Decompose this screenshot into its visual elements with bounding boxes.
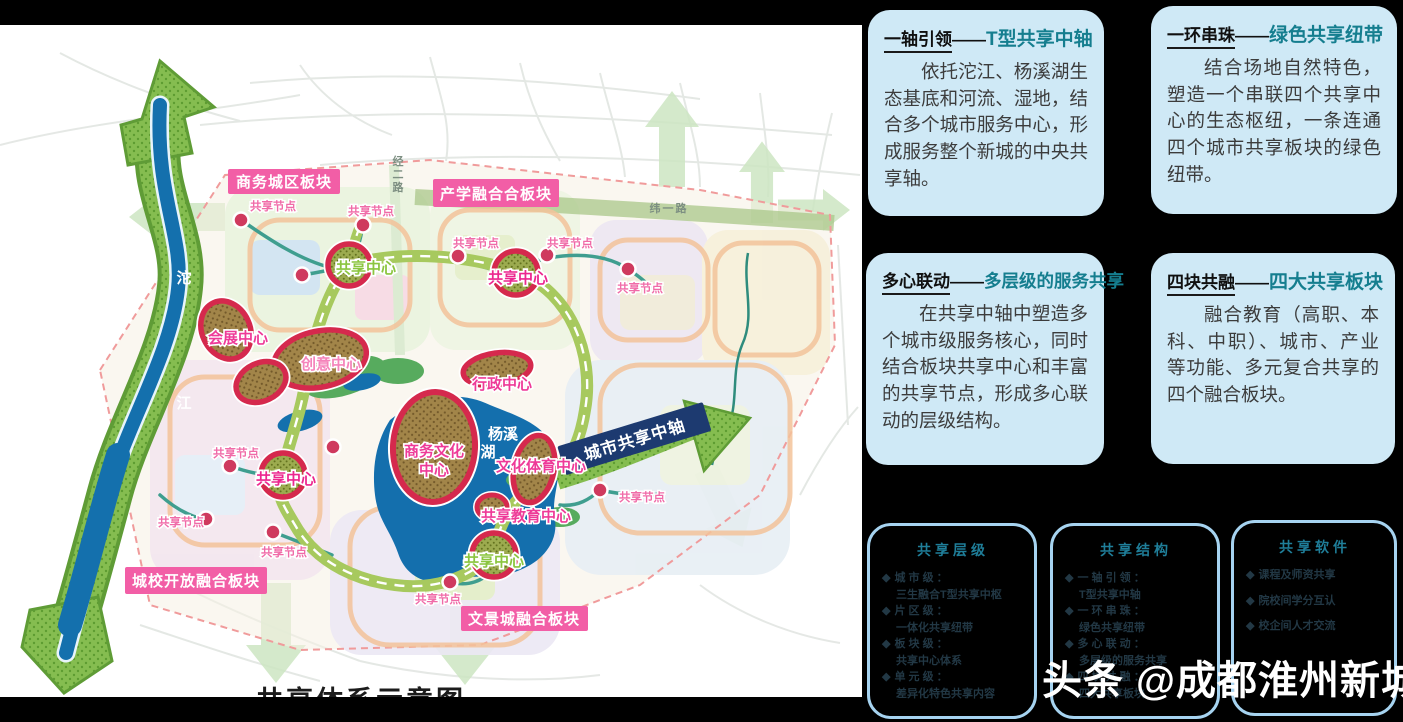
node-label: 共享节点	[213, 446, 259, 460]
node-label: 共享节点	[547, 236, 593, 250]
creative-center-label: 创意中心	[300, 355, 361, 373]
exhibition-center-label: 会展中心	[208, 329, 268, 347]
card-title-black: 一轴引领	[884, 30, 952, 53]
mini-item: ◆院校间学分互认	[1246, 593, 1384, 610]
diamond-bullet-icon: ◆	[1065, 605, 1073, 617]
mini-item: ◆一 环 串 珠 ：绿色共享纽带	[1065, 603, 1207, 636]
block-city-campus: 城校开放融合板块	[132, 572, 260, 590]
mini-item-value: 三生融合T型共享中枢	[882, 587, 1024, 604]
page: 城市共享中轴	[0, 0, 1403, 722]
card-title: 一环串珠——绿色共享纽带	[1167, 20, 1381, 47]
card-title-dash: ——	[1235, 273, 1269, 292]
card-multicenter: 多心联动——多层级的服务共享 在共享中轴中塑造多个城市级服务核心，同时结合板块共…	[866, 253, 1104, 465]
diamond-bullet-icon: ◆	[1246, 620, 1254, 632]
share-center-label: 共享中心	[256, 470, 316, 488]
diamond-bullet-icon: ◆	[1065, 572, 1073, 584]
node-label: 共享节点	[250, 199, 296, 213]
river-name-top: 沱	[176, 269, 191, 287]
node-label: 共享节点	[617, 281, 663, 295]
node-label: 共享节点	[158, 515, 204, 529]
mini-item: ◆课程及师资共享	[1246, 567, 1384, 584]
card-body: 结合场地自然特色，塑造一个串联四个共享中心的生态枢纽，一条连通四个城市共享板块的…	[1167, 55, 1381, 188]
jingerlu-label: 经二路	[391, 154, 404, 194]
weiyilu-label: 纬一路	[650, 201, 689, 215]
mini-item-label: 城 市 级 ：	[894, 572, 947, 584]
mini-item-label: 校企间人才交流	[1258, 620, 1335, 632]
card-ring: 一环串珠——绿色共享纽带 结合场地自然特色，塑造一个串联四个共享中心的生态枢纽，…	[1151, 6, 1397, 214]
mini-item: ◆片 区 级 ：一体化共享纽带	[882, 603, 1024, 636]
node-label: 共享节点	[619, 490, 665, 504]
lake-name-2: 湖	[480, 444, 495, 461]
mini-item-label: 一 轴 引 领 ：	[1077, 572, 1144, 584]
map-caption: 共享体系示意图	[256, 679, 466, 697]
card-title: 四块共融——四大共享板块	[1167, 267, 1379, 294]
node-label: 共享节点	[348, 204, 394, 218]
node-label: 共享节点	[415, 592, 461, 606]
node-label: 共享节点	[261, 545, 307, 559]
diamond-bullet-icon: ◆	[1246, 595, 1254, 607]
diamond-bullet-icon: ◆	[882, 605, 890, 617]
card-title-dash: ——	[950, 272, 984, 291]
mini-item-value: 绿色共享纽带	[1065, 620, 1207, 637]
mini-item-value: T型共享中轴	[1065, 587, 1207, 604]
share-center-label: 共享中心	[464, 552, 524, 570]
mini-item-label: 片 区 级 ：	[894, 605, 947, 617]
card-title-black: 多心联动	[882, 272, 950, 295]
biz-culture-center-label: 商务文化	[404, 442, 464, 460]
share-center-label: 共享中心	[336, 259, 396, 277]
planning-map-svg: 城市共享中轴	[0, 25, 862, 697]
mini-item-label: 课程及师资共享	[1258, 569, 1335, 581]
card-title-teal: 四大共享板块	[1269, 272, 1383, 293]
card-title-teal: T型共享中轴	[986, 29, 1093, 50]
card-axis: 一轴引领——T型共享中轴 依托沱江、杨溪湖生态基底和河流、湿地，结合多个城市服务…	[868, 10, 1104, 216]
mini-card-levels: 共享层级 ◆城 市 级 ：三生融合T型共享中枢 ◆片 区 级 ：一体化共享纽带 …	[867, 523, 1037, 719]
card-title-teal: 绿色共享纽带	[1269, 25, 1383, 46]
mini-item-label: 单 元 级 ：	[894, 671, 947, 683]
card-title: 多心联动——多层级的服务共享	[882, 267, 1088, 293]
mini-card-title: 共享层级	[882, 540, 1024, 560]
watermark: 头条@成都淮州新城	[1042, 648, 1403, 706]
diamond-bullet-icon: ◆	[1246, 569, 1254, 581]
card-title-dash: ——	[952, 30, 986, 49]
diamond-bullet-icon: ◆	[882, 572, 890, 584]
admin-center-label: 行政中心	[471, 375, 532, 393]
card-title-black: 一环串珠	[1167, 26, 1235, 49]
culture-sports-center-label: 文化体育中心	[496, 457, 586, 475]
mini-item: ◆城 市 级 ：三生融合T型共享中枢	[882, 570, 1024, 603]
share-center-label: 共享中心	[488, 269, 548, 287]
diamond-bullet-icon: ◆	[882, 638, 890, 650]
mini-item: ◆板 块 级 ：共享中心体系	[882, 636, 1024, 669]
mini-item-value: 一体化共享纽带	[882, 620, 1024, 637]
card-body: 融合教育（高职、本科、中职）、城市、产业等功能、多元复合共享的四个融合板块。	[1167, 302, 1379, 409]
card-title-black: 四块共融	[1167, 273, 1235, 296]
watermark-handle: @成都淮州新城	[1136, 659, 1403, 703]
card-title: 一轴引领——T型共享中轴	[884, 24, 1088, 51]
mini-card-title: 共享结构	[1065, 540, 1207, 560]
mini-item-label: 板 块 级 ：	[894, 638, 947, 650]
mini-item-label: 一 环 串 珠 ：	[1077, 605, 1144, 617]
card-body: 在共享中轴中塑造多个城市级服务核心，同时结合板块共享中心和丰富的共享节点，形成多…	[882, 301, 1088, 434]
mini-item: ◆单 元 级 ：差异化特色共享内容	[882, 669, 1024, 702]
mini-item-label: 院校间学分互认	[1258, 595, 1335, 607]
lake-name-1: 杨溪	[488, 425, 519, 443]
node-label: 共享节点	[453, 236, 499, 250]
card-body: 依托沱江、杨溪湖生态基底和河流、湿地，结合多个城市服务中心，形成服务整个新城的中…	[884, 59, 1088, 192]
mini-item: ◆校企间人才交流	[1246, 618, 1384, 635]
card-title-teal: 多层级的服务共享	[984, 271, 1124, 291]
block-business: 商务城区板块	[236, 173, 332, 191]
card-blocks: 四块共融——四大共享板块 融合教育（高职、本科、中职）、城市、产业等功能、多元复…	[1151, 253, 1395, 464]
watermark-brand: 头条	[1042, 659, 1124, 703]
block-wenjing: 文景城融合板块	[468, 610, 580, 628]
diamond-bullet-icon: ◆	[882, 671, 890, 683]
mini-card-title: 共享软件	[1246, 537, 1384, 557]
biz-culture-center-label2: 中心	[419, 461, 449, 479]
block-industry-edu: 产学融合合板块	[440, 185, 552, 203]
mini-item: ◆一 轴 引 领 ：T型共享中轴	[1065, 570, 1207, 603]
river-name-bottom: 江	[176, 394, 191, 412]
mini-item-value: 差异化特色共享内容	[882, 686, 1024, 703]
edu-share-center-label: 共享教育中心	[481, 507, 571, 525]
mini-item-value: 共享中心体系	[882, 653, 1024, 670]
card-title-dash: ——	[1235, 26, 1269, 45]
map-area: 城市共享中轴	[0, 25, 862, 697]
